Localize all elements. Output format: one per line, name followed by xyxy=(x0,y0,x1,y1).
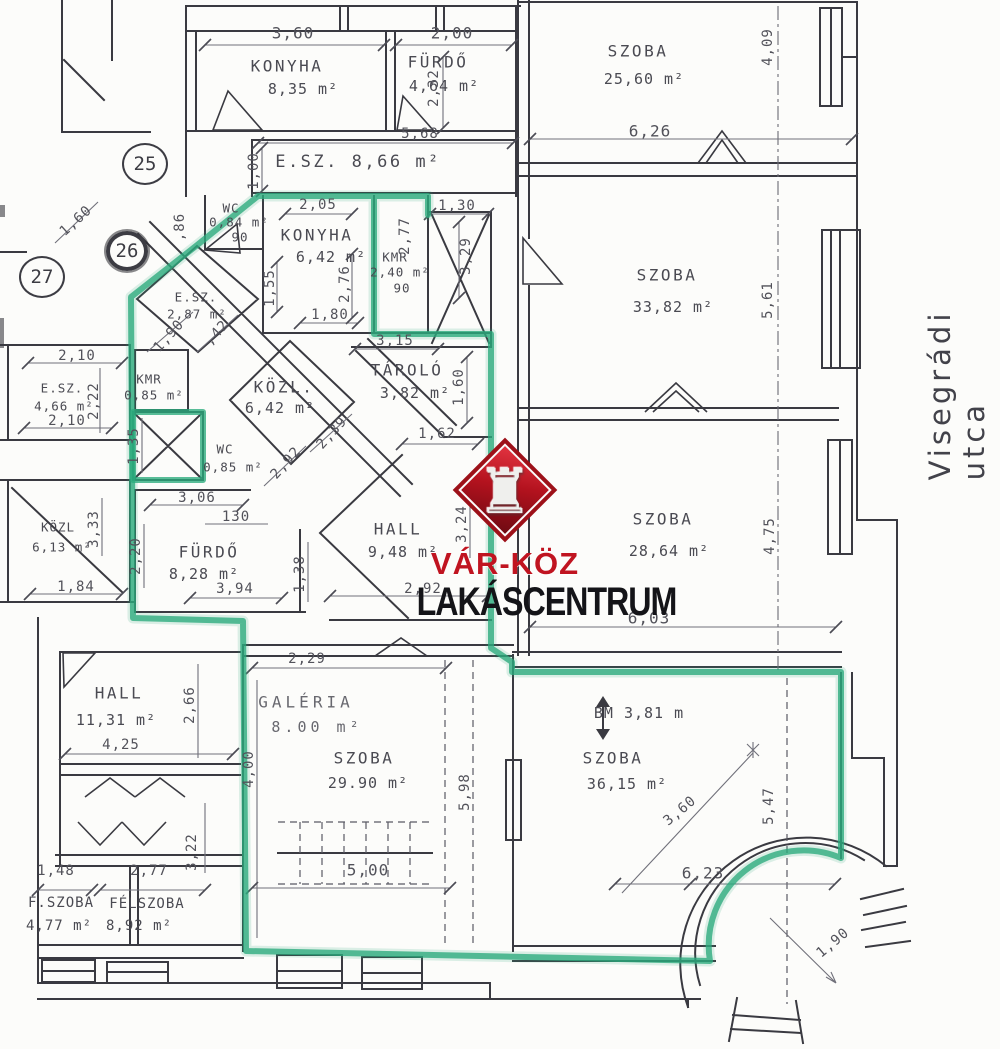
room-area: 8,66 m² xyxy=(352,152,441,172)
dim-label: 5,00 xyxy=(347,861,390,880)
circled-number-26: 26 xyxy=(106,231,148,271)
room-area: 29.90 m² xyxy=(328,774,408,792)
dim-label: 2,77 xyxy=(130,863,168,879)
dim-label: 4,25 xyxy=(102,737,140,753)
room-name-area: E.SZ. 8,66 m² xyxy=(275,152,441,172)
room-name: SZOBA xyxy=(334,749,395,768)
dim-label: 1,38 xyxy=(292,555,308,593)
room-area: 6,42 m² xyxy=(296,248,366,266)
dim-label: 3,22 xyxy=(184,833,200,871)
room-area: 0,84 m² xyxy=(209,215,269,230)
room-area: 4,66 m² xyxy=(34,399,94,414)
room-name: FÜRDŐ xyxy=(179,543,240,562)
circled-number-27: 27 xyxy=(19,256,65,298)
room-name: HALL xyxy=(374,520,423,539)
room-name: TÁROLÓ xyxy=(371,361,444,380)
room-extra: 90 xyxy=(231,230,248,245)
room-name: E.SZ. xyxy=(275,152,339,172)
dim-label: 4,75 xyxy=(762,517,778,555)
logo-brand-top: VÁR-KÖZ xyxy=(420,546,590,582)
dim-label: 2,66 xyxy=(182,686,198,724)
dim-label: 1,48 xyxy=(37,863,75,879)
dim-label: 2,00 xyxy=(431,24,474,43)
agency-logo: ♜ VÁR-KÖZ LAKÁSCENTRUM xyxy=(420,438,590,620)
room-area: 4,64 m² xyxy=(409,77,479,95)
room-area: 36,15 m² xyxy=(587,775,667,793)
dim-label: 4,00 xyxy=(241,750,257,788)
room-area: 6,42 m² xyxy=(245,399,315,417)
room-area: 3,82 m² xyxy=(380,384,450,402)
room-extra: 90 xyxy=(393,281,410,296)
dim-label: 2,20 xyxy=(128,537,144,575)
room-name: HALL xyxy=(95,684,144,703)
circled-number-25: 25 xyxy=(122,143,168,185)
dim-label: 2,76 xyxy=(337,265,353,303)
room-area: 28,64 m² xyxy=(629,542,709,560)
room-area: 2,40 m² xyxy=(370,265,430,280)
dim-label: 5,68 xyxy=(401,126,439,142)
room-name: FÉLSZOBA xyxy=(109,896,184,912)
room-area: 6,13 m² xyxy=(32,540,92,555)
dim-label: 5,61 xyxy=(760,281,776,319)
room-name: E.SZ. xyxy=(175,290,218,305)
dim-label: 2,32 xyxy=(426,69,442,107)
dim-label: 1,80 xyxy=(311,307,349,323)
scan-artifacts xyxy=(0,205,5,348)
room-area: 33,82 m² xyxy=(633,298,713,316)
dim-label: 2,77 xyxy=(397,217,413,255)
dim-label: 3,29 xyxy=(458,237,474,275)
door-symbols xyxy=(63,91,746,845)
room-name: KÖZL. xyxy=(254,378,315,397)
room-name: F.SZOBA xyxy=(28,895,94,911)
room-name: SZOBA xyxy=(633,510,694,529)
room-name: KMR xyxy=(136,372,162,387)
room-name: SZOBA xyxy=(583,749,644,768)
dim-label: 3,94 xyxy=(216,581,254,597)
dim-label: 6,26 xyxy=(629,122,672,141)
dim-label: 1,00 xyxy=(246,152,262,190)
dim-label: 2,10 xyxy=(58,348,96,364)
room-area: 11,31 m² xyxy=(76,711,156,729)
room-area: 4,77 m² xyxy=(26,918,92,934)
room-area: 8.00 m² xyxy=(271,718,362,736)
ceiling-height-label: BM 3,81 m xyxy=(594,704,684,722)
room-area: 8,92 m² xyxy=(106,918,172,934)
room-name: KONYHA xyxy=(281,226,354,245)
dim-label: 3,06 xyxy=(178,490,216,506)
room-area: 25,60 m² xyxy=(604,70,684,88)
dim-label: 130 xyxy=(222,509,250,525)
logo-diamond: ♜ xyxy=(420,438,590,546)
dim-label: 4,09 xyxy=(760,28,776,66)
room-area: 0,85 m² xyxy=(124,388,184,403)
street-name: Visegrádi utca xyxy=(923,310,991,481)
room-name: WC xyxy=(222,201,239,216)
room-name: SZOBA xyxy=(637,266,698,285)
dim-label: 5,98 xyxy=(457,773,473,811)
dim-label: 1,35 xyxy=(126,427,142,465)
dim-label: 1,55 xyxy=(262,269,278,307)
dim-label: 1,30 xyxy=(438,198,476,214)
dim-label: 5,47 xyxy=(761,787,777,825)
dim-label: 2,05 xyxy=(299,197,337,213)
dim-label: 3,15 xyxy=(376,333,414,349)
room-name: SZOBA xyxy=(608,42,669,61)
dim-label: 1,60 xyxy=(451,368,467,406)
dim-label: 2,22 xyxy=(86,382,102,420)
dim-label: ,86 xyxy=(172,213,188,241)
dim-label: 6,23 xyxy=(682,864,725,883)
room-name: KÖZL xyxy=(41,520,75,535)
dim-label: 3,60 xyxy=(272,24,315,43)
logo-brand-bottom: LAKÁSCENTRUM xyxy=(417,579,594,626)
room-name: WC xyxy=(216,442,233,457)
room-area: 0,85 m² xyxy=(203,460,263,475)
rook-icon: ♜ xyxy=(477,461,533,523)
room-name: GALÉRIA xyxy=(258,693,353,712)
floor-plan-scan: 25 26 27 KONYHA 8,35 m² FÜRDŐ 4,64 m² E.… xyxy=(0,0,1000,1049)
dim-label: 1,84 xyxy=(57,579,95,595)
dim-label: 2,10 xyxy=(48,413,86,429)
room-area: 8,35 m² xyxy=(268,80,338,98)
dim-label: 2,29 xyxy=(288,651,326,667)
room-name: E.SZ. xyxy=(41,381,84,396)
room-name: KONYHA xyxy=(251,57,324,76)
dim-label: 3,33 xyxy=(86,510,102,548)
